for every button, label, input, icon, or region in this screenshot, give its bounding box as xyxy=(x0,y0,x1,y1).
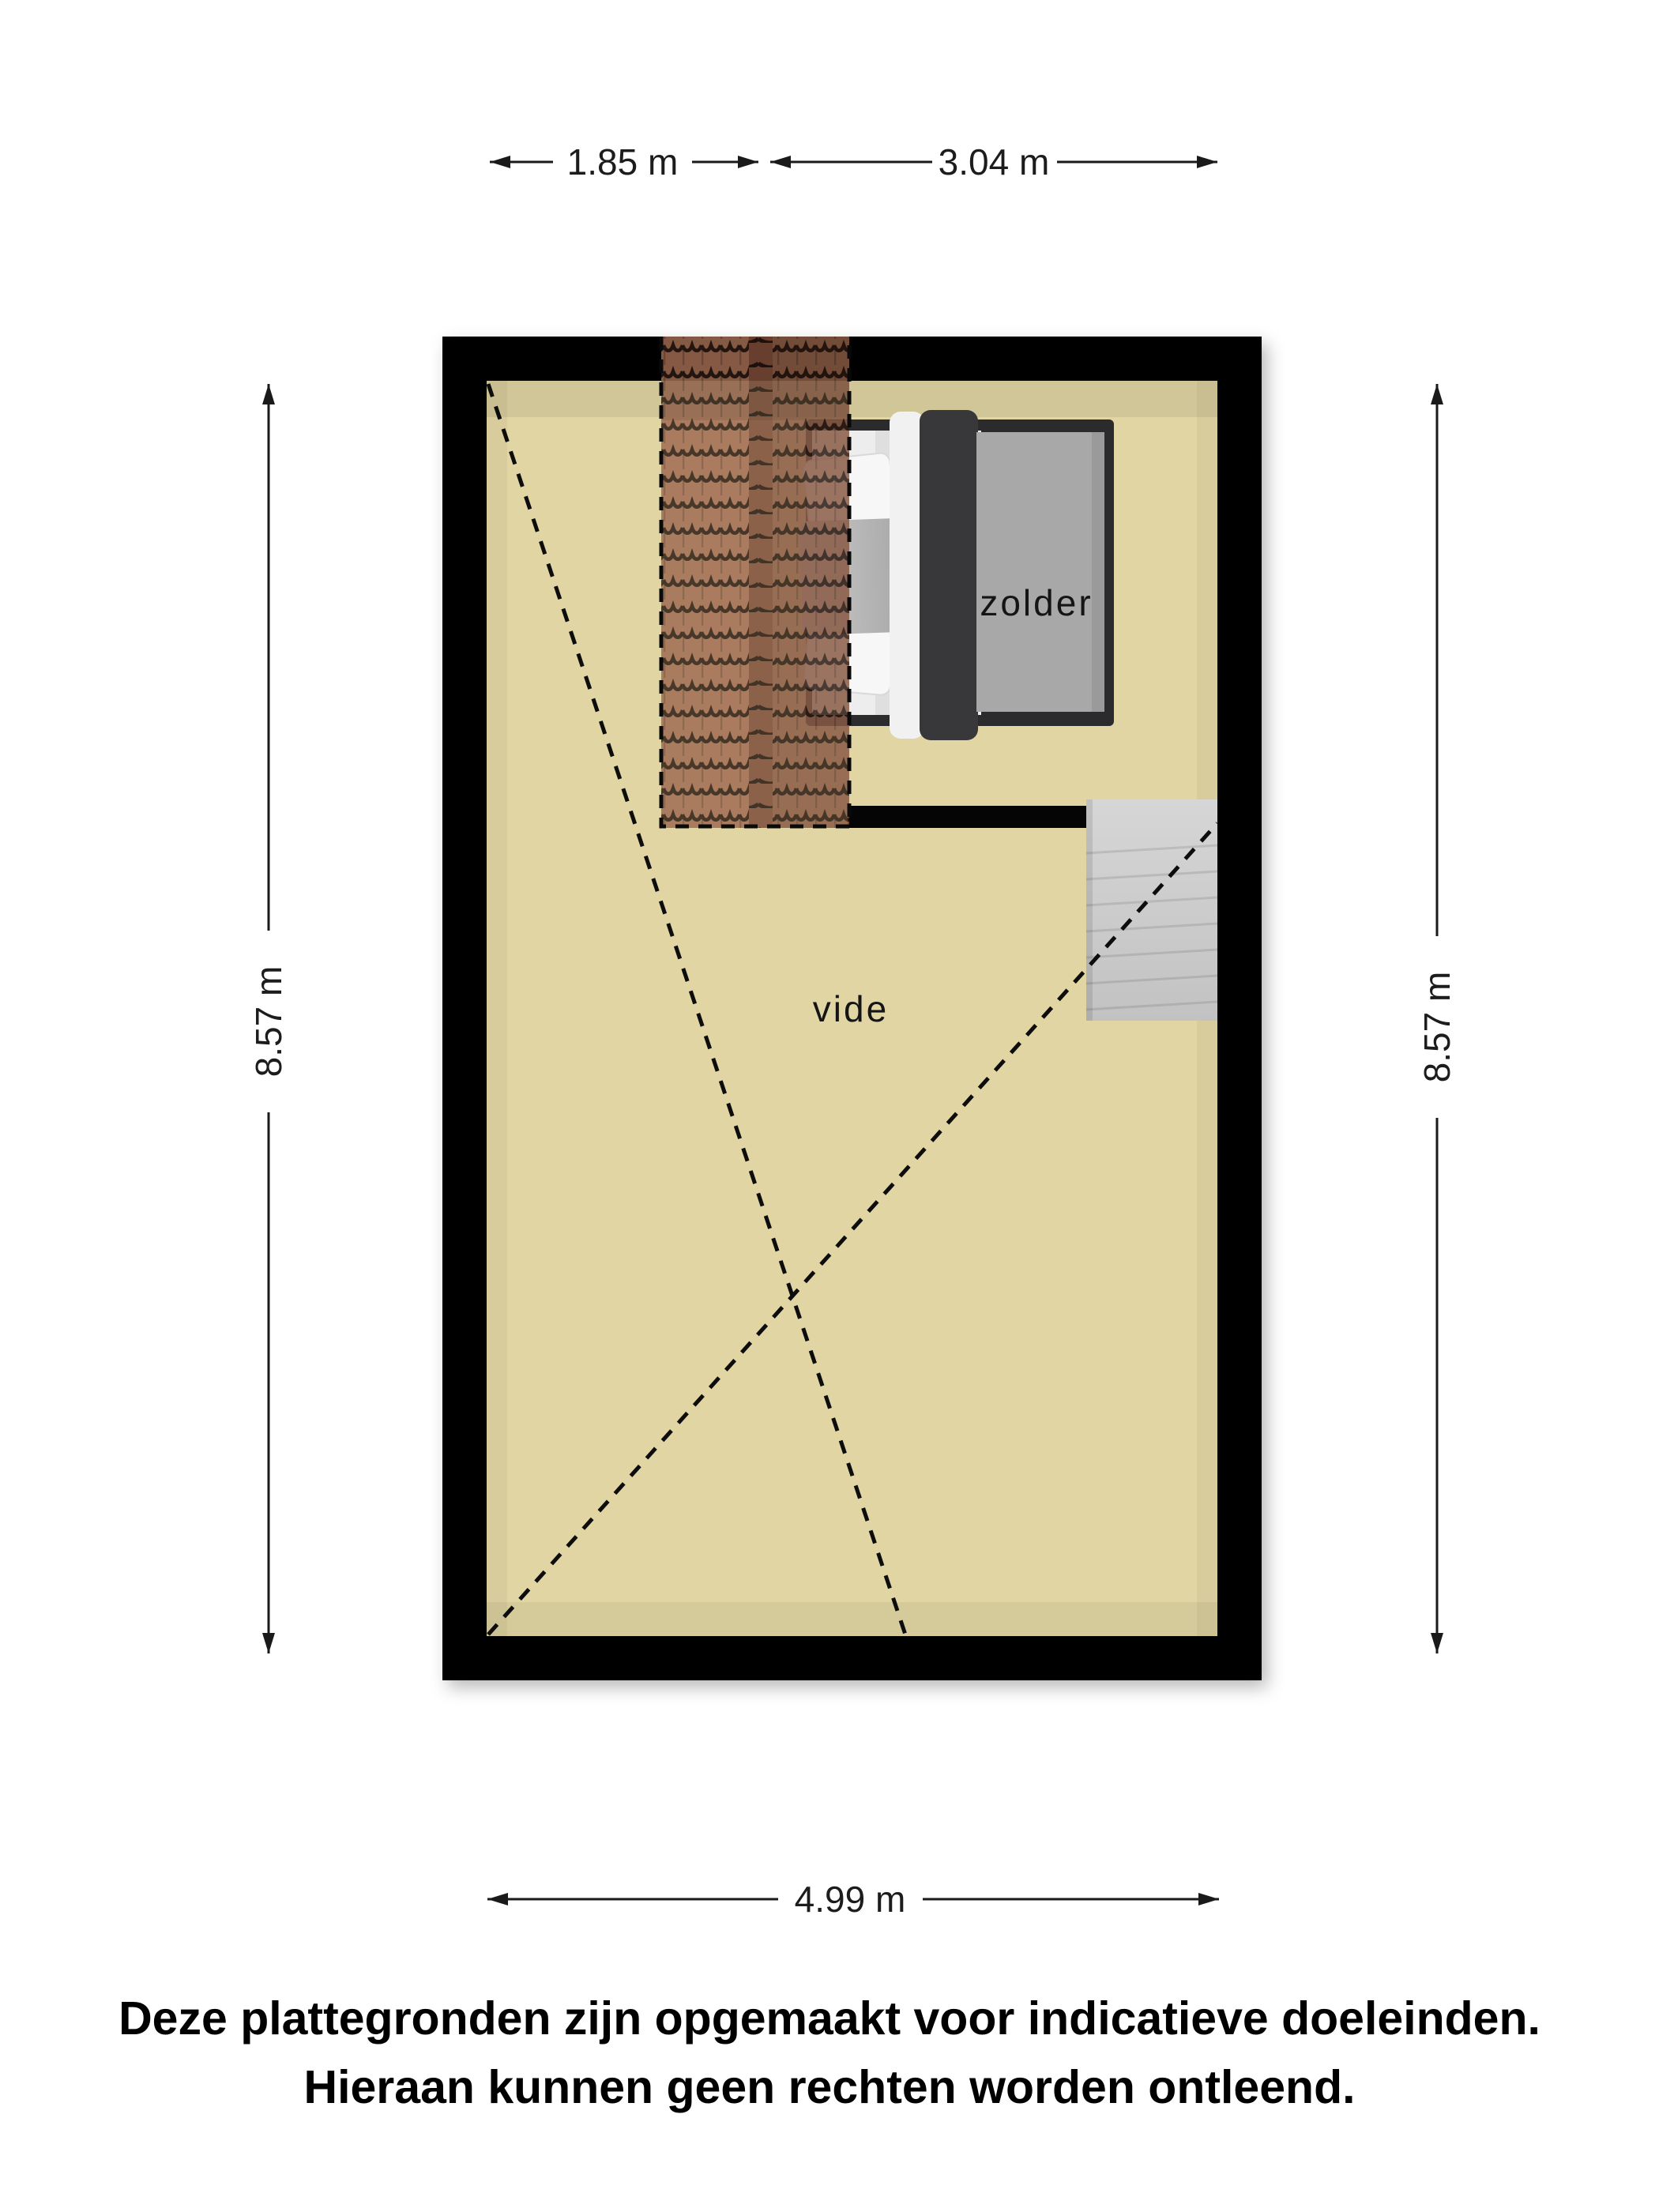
bed-duvet-dark-band xyxy=(920,410,978,740)
disclaimer-line-1: Deze plattegronden zijn opgemaakt voor i… xyxy=(0,1984,1659,2053)
room-label-vide: vide xyxy=(813,988,889,1029)
floorplan-page: zolder 1.85 m xyxy=(0,0,1659,2212)
disclaimer: Deze plattegronden zijn opgemaakt voor i… xyxy=(0,1984,1659,2122)
dimension-label-right: 8.57 m xyxy=(1416,972,1458,1083)
dimension-top-right: 3.04 m xyxy=(770,141,1217,182)
floorplan-drawing: zolder 1.85 m xyxy=(0,0,1659,2212)
dimension-label-top-right: 3.04 m xyxy=(939,141,1050,182)
dimension-right: 8.57 m xyxy=(1416,384,1458,1653)
staircase-edge-shade xyxy=(1086,799,1093,1021)
dimension-label-top-left: 1.85 m xyxy=(567,141,679,182)
bed-blanket xyxy=(976,432,1104,712)
floor-shade-bottom xyxy=(487,1602,1217,1636)
floor-shade-left xyxy=(487,381,507,1636)
bed-blanket-shade xyxy=(1092,432,1104,712)
room-label-zolder: zolder xyxy=(980,582,1093,623)
dimension-top-left: 1.85 m xyxy=(490,141,758,182)
dimension-bottom: 4.99 m xyxy=(487,1879,1219,1920)
dimension-label-left: 8.57 m xyxy=(248,966,289,1078)
floor-shade-top xyxy=(487,381,1217,417)
dimension-label-bottom: 4.99 m xyxy=(795,1879,906,1920)
staircase xyxy=(1086,799,1217,1021)
bed-duvet-white-band xyxy=(890,412,924,739)
roof-tile-overlay xyxy=(661,337,849,828)
dimension-left: 8.57 m xyxy=(248,384,289,1653)
disclaimer-line-2: Hieraan kunnen geen rechten worden ontle… xyxy=(0,2053,1659,2122)
